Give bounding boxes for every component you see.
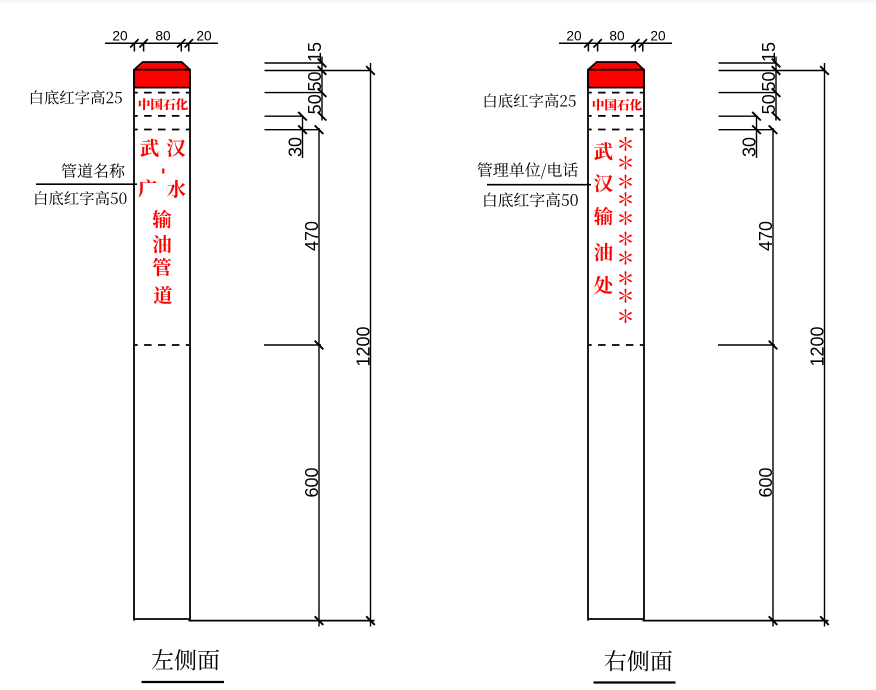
svg-text:470: 470 bbox=[756, 221, 776, 251]
svg-text:50: 50 bbox=[305, 94, 325, 114]
svg-text:20: 20 bbox=[196, 29, 212, 44]
svg-text:20: 20 bbox=[650, 29, 666, 44]
svg-text:20: 20 bbox=[112, 29, 128, 44]
svg-text:50: 50 bbox=[759, 71, 779, 91]
svg-text:80: 80 bbox=[155, 29, 171, 44]
svg-text:80: 80 bbox=[609, 29, 625, 44]
svg-text:1200: 1200 bbox=[807, 326, 827, 366]
svg-text:30: 30 bbox=[739, 137, 759, 157]
svg-text:20: 20 bbox=[566, 29, 582, 44]
svg-text:600: 600 bbox=[302, 467, 322, 497]
svg-text:600: 600 bbox=[756, 467, 776, 497]
svg-text:50: 50 bbox=[759, 94, 779, 114]
svg-text:15: 15 bbox=[305, 42, 325, 62]
svg-text:15: 15 bbox=[759, 42, 779, 62]
svg-text:30: 30 bbox=[285, 137, 305, 157]
svg-text:50: 50 bbox=[305, 71, 325, 91]
svg-text:1200: 1200 bbox=[353, 326, 373, 366]
svg-text:470: 470 bbox=[302, 221, 322, 251]
